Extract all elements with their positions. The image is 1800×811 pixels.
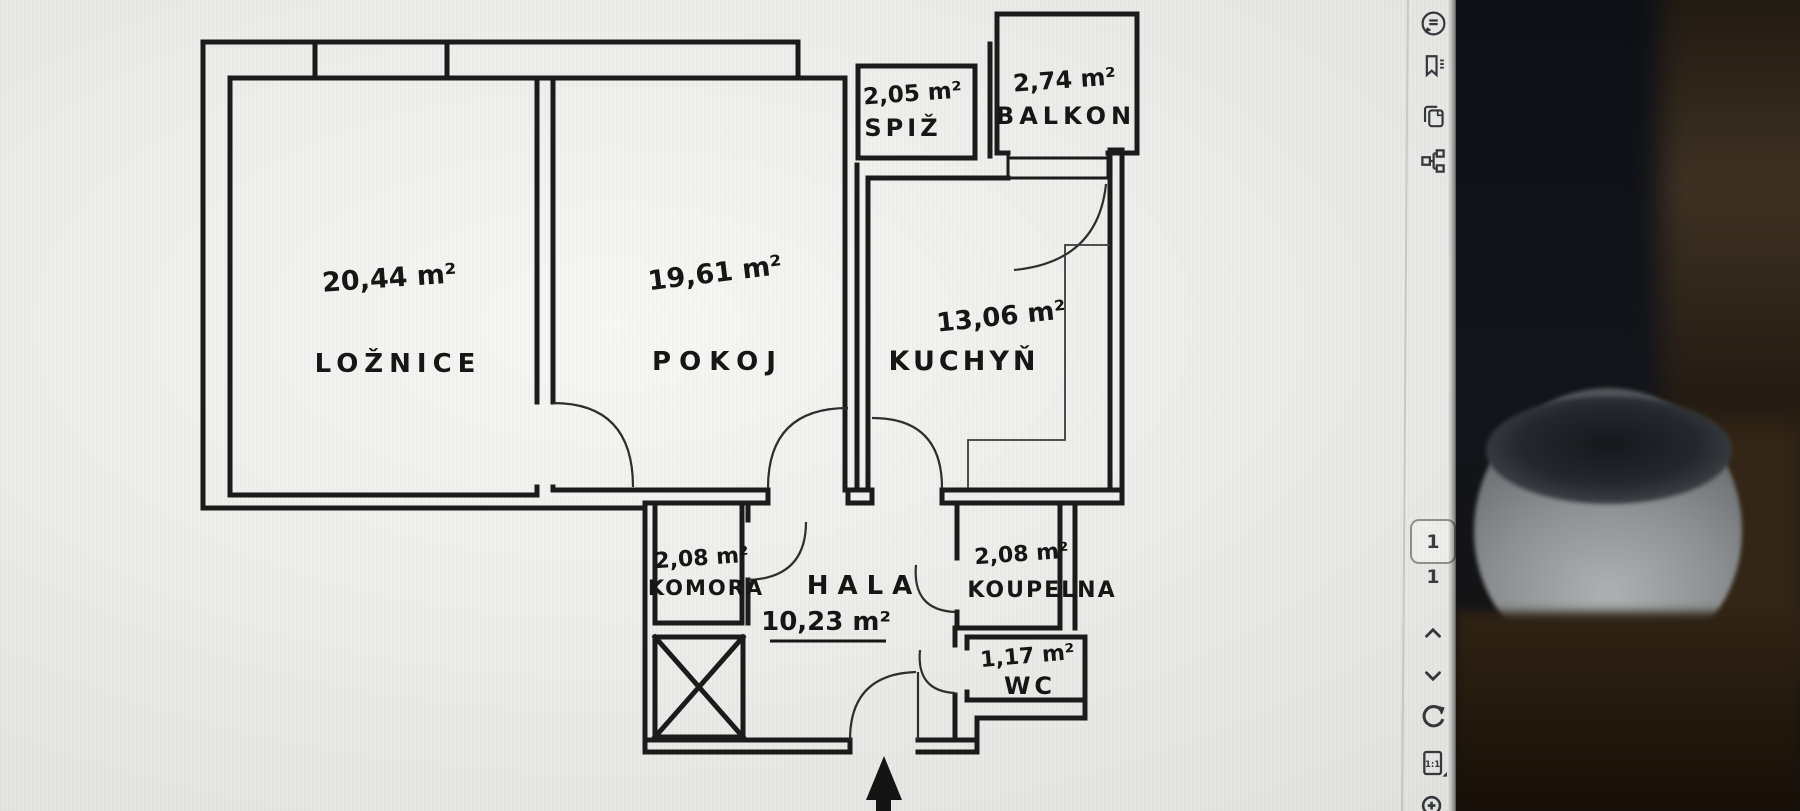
bowl-interior [1486,396,1732,504]
room-label-komora: KOMORA [648,576,764,600]
room-area-komora: 2,08 m² [654,543,750,575]
viewer-canvas: 20,44 m² LOŽNICE 19,61 m² POKOJ 13,06 m²… [0,0,1456,811]
balcony-window [1008,153,1108,178]
room-area-kuchyn: 13,06 m² [935,295,1067,338]
room-area-hala: 10,23 m² [761,607,891,637]
room-label-spiz: SPIŽ [864,113,941,142]
room-label-balkon: BALKON [996,102,1136,130]
actual-size-text: 1:1 [1425,760,1440,770]
room-label-loznice: LOŽNICE [315,347,482,379]
room-label-wc: WC [1004,672,1056,700]
room-label-pokoj: POKOJ [652,347,784,377]
room-area-spiz: 2,05 m² [862,78,962,111]
room-label-koupelna: KOUPELNA [967,578,1116,603]
desk-surface-front [1456,612,1800,811]
page-number-value: 1 [1426,531,1439,553]
entrance-arrow [866,756,902,811]
floorplan-drawing: 20,44 m² LOŽNICE 19,61 m² POKOJ 13,06 m²… [0,0,1456,811]
room-area-koupelna: 2,08 m² [974,539,1070,571]
background-wood-blur [1660,0,1800,450]
room-label-hala: HALA [807,571,922,601]
room-area-pokoj: 19,61 m² [646,250,784,297]
room-area-balkon: 2,74 m² [1012,62,1117,97]
room-area-wc: 1,17 m² [979,640,1075,673]
room-label-kuchyn: KUCHYŇ [889,345,1040,377]
room-background [1456,0,1800,811]
photo-of-monitor: 20,44 m² LOŽNICE 19,61 m² POKOJ 13,06 m²… [0,0,1800,811]
room-area-loznice: 20,44 m² [321,258,458,298]
